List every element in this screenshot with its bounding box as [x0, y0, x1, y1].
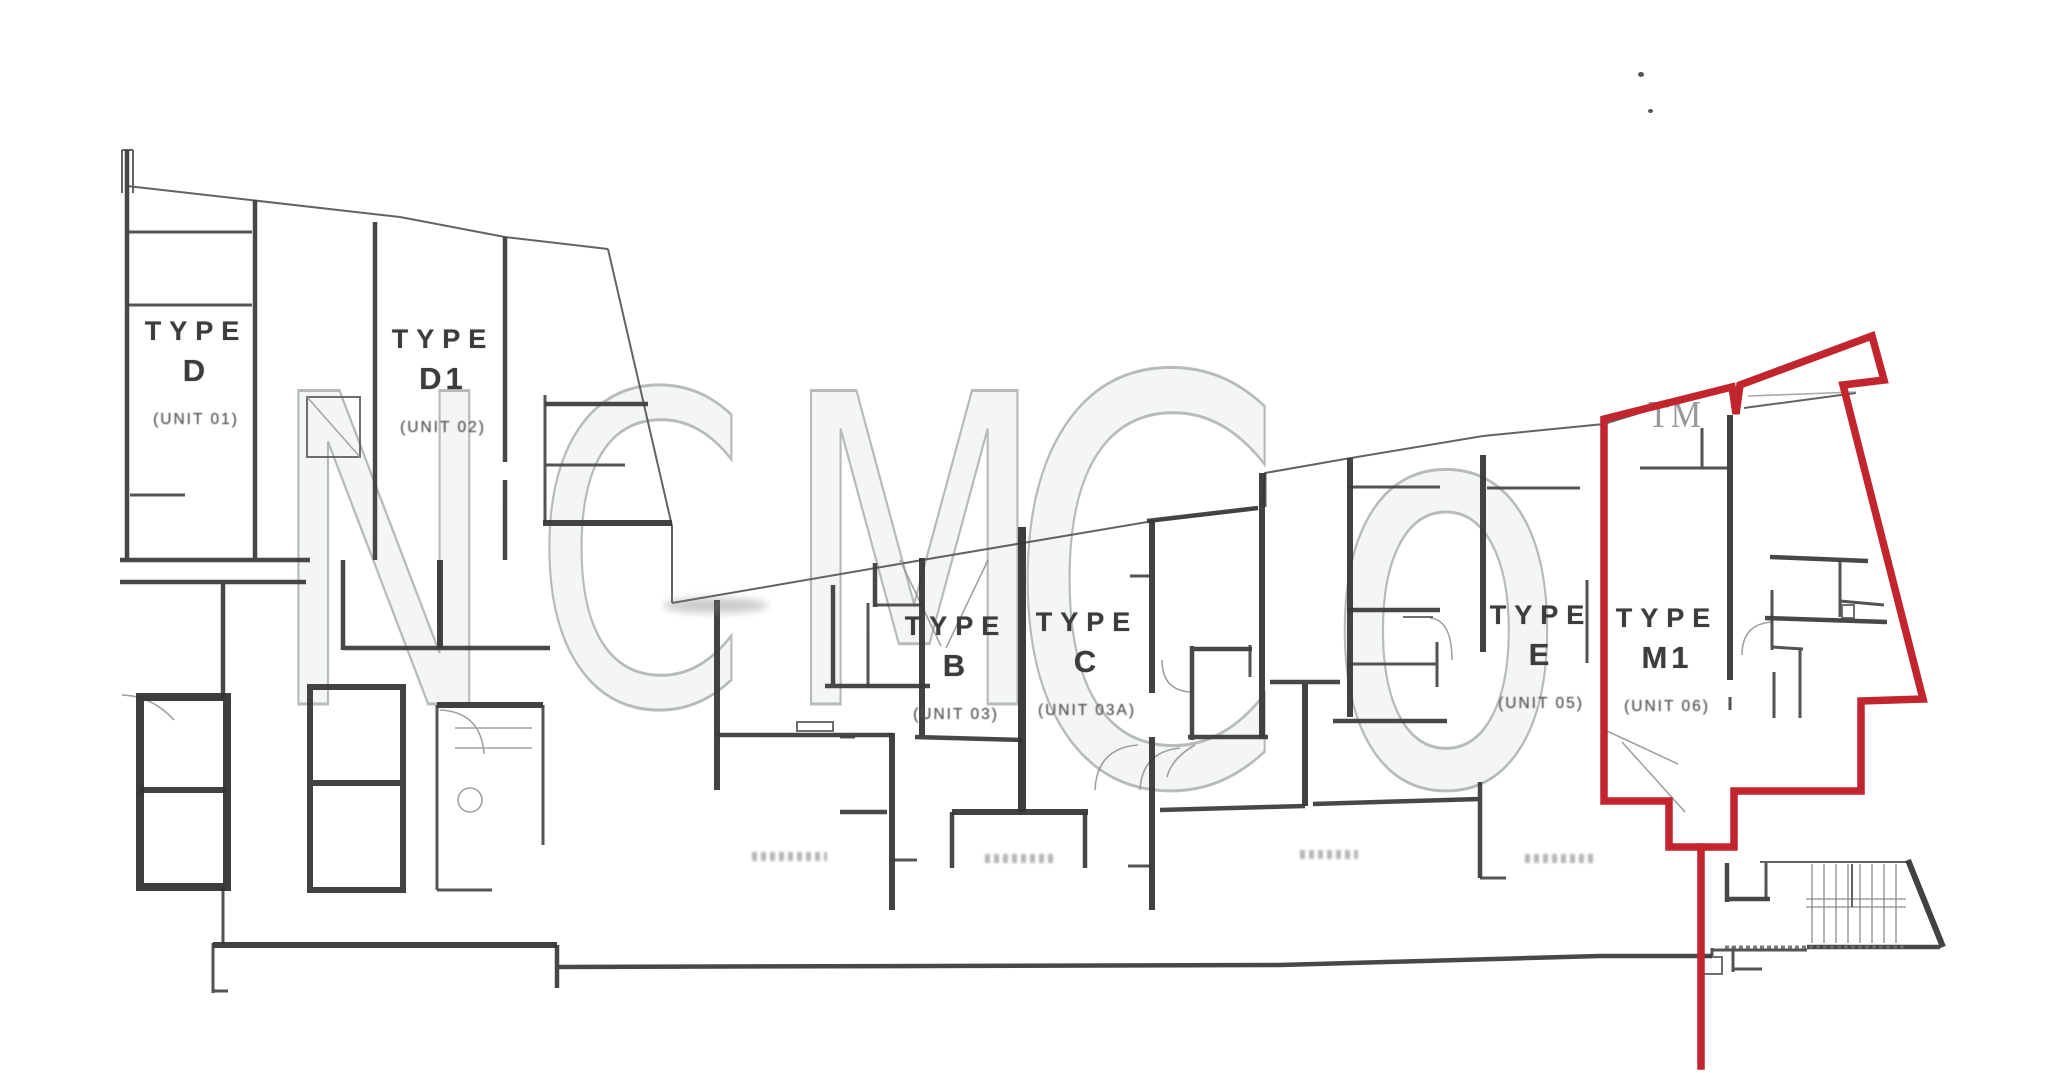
unit-type-letter: M1 [1567, 640, 1767, 676]
illegible-room-text [985, 854, 1055, 863]
unit-type-letter: D1 [343, 361, 543, 397]
scan-speck [1648, 109, 1653, 113]
scan-speck [1638, 72, 1644, 77]
unit-label-type-c: TYPE C (UNIT 03A) [987, 607, 1187, 720]
unit-type-word: TYPE [1567, 603, 1767, 634]
unit-type-word: TYPE [987, 607, 1187, 638]
illegible-room-text [1525, 854, 1595, 863]
unit-number: (UNIT 01) [96, 411, 296, 429]
unit-m1-highlight-outline [1604, 336, 1923, 847]
unit-type-word: TYPE [343, 324, 543, 355]
building-outline [122, 150, 1907, 862]
unit-label-type-d1: TYPE D1 (UNIT 02) [343, 324, 543, 437]
unit-number: (UNIT 02) [343, 419, 543, 437]
unit-type-letter: D [96, 353, 296, 389]
illegible-room-text [752, 852, 827, 861]
staircase [1806, 864, 1906, 943]
scan-smudge [663, 598, 768, 613]
unit-label-type-d: TYPE D (UNIT 01) [96, 316, 296, 429]
unit-type-letter: C [987, 644, 1187, 680]
illegible-room-text [1300, 850, 1358, 859]
unit-label-type-m1: TYPE M1 (UNIT 06) [1567, 603, 1767, 716]
unit-number: (UNIT 06) [1567, 698, 1767, 716]
unit-type-word: TYPE [96, 316, 296, 347]
floor-plan-linework [0, 0, 2048, 1073]
unit-number: (UNIT 03A) [987, 702, 1187, 720]
floor-plan-scan: NCM Co TM [0, 0, 2048, 1073]
